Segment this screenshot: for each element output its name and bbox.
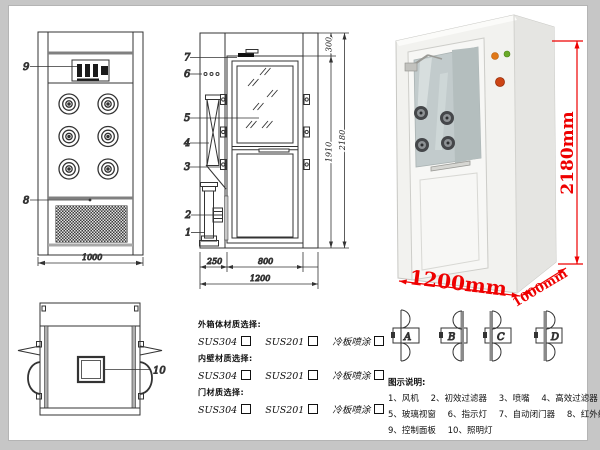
checkbox[interactable]	[308, 370, 318, 380]
legend-block: 图示说明: 1、风机 2、初效过滤器 3、喷嘴 4、高效过滤器 5、玻璃视窗 6…	[388, 376, 593, 436]
material-group-title: 外箱体材质选择:	[198, 319, 378, 330]
legend-item: 1、风机	[388, 394, 419, 404]
photo-dim-height: 2180mm	[558, 111, 578, 194]
checkbox[interactable]	[308, 404, 318, 414]
leader-lines-front	[30, 67, 91, 202]
nozzles-front	[59, 94, 118, 179]
legend-item: 5、玻璃视窗	[388, 410, 436, 420]
checkbox[interactable]	[374, 370, 384, 380]
callout-2: 2	[184, 210, 191, 221]
air-return-grille	[56, 206, 127, 242]
door-option-c: C	[484, 311, 512, 361]
dim-2180: 2180	[338, 130, 347, 151]
material-option-label: SUS304	[198, 371, 237, 382]
callout-3: 3	[184, 162, 190, 173]
material-group-title: 门材质选择:	[198, 387, 378, 398]
checkbox[interactable]	[241, 404, 251, 414]
material-option-label: SUS201	[265, 337, 304, 348]
door-option-d-label: D	[550, 332, 559, 343]
emergency-button	[496, 78, 505, 87]
legend-item: 10、照明灯	[448, 426, 493, 436]
air-shower-spec-sheet: 9 8 1000	[0, 0, 600, 450]
material-option-label: SUS304	[198, 337, 237, 348]
material-options-row: SUS304 SUS201 冷板喷涂	[198, 334, 378, 348]
legend-item: 3、喷嘴	[499, 394, 530, 404]
checkbox[interactable]	[241, 370, 251, 380]
door-hardware-left	[18, 342, 42, 400]
dim-1000: 1000	[82, 253, 102, 262]
door-option-b-label: B	[447, 332, 455, 343]
material-option-label: SUS304	[198, 405, 237, 416]
material-option-label: 冷板喷涂	[332, 337, 370, 348]
top-trim-band	[48, 52, 133, 55]
product-photo: 2180mm 1200mm 1000mm	[396, 15, 583, 310]
door	[227, 56, 303, 243]
glass-hatch-marks	[246, 68, 278, 128]
legend-item: 7、自动闭门器	[499, 410, 555, 420]
legend-item: 6、指示灯	[448, 410, 487, 420]
dim-1910: 1910	[325, 142, 334, 162]
material-option-label: SUS201	[265, 371, 304, 382]
door-glass	[237, 66, 293, 143]
side-nozzle-brackets	[221, 95, 310, 170]
callout-6: 6	[184, 69, 191, 80]
door-swing-options: A B C	[392, 310, 563, 361]
door-option-a: A	[392, 310, 420, 361]
callout-7: 7	[184, 53, 191, 64]
dim-250: 250	[206, 257, 222, 266]
dim-1200: 1200	[250, 274, 270, 283]
dim-800: 800	[258, 257, 273, 266]
door-option-b: B	[440, 311, 468, 361]
callout-4: 4	[183, 138, 190, 149]
legend-item: 2、初效过滤器	[431, 394, 487, 404]
legend-row: 9、控制面板 10、照明灯	[388, 424, 593, 436]
callout-1: 1	[185, 228, 191, 239]
green-indicator-light	[504, 51, 510, 57]
legend-row: 5、玻璃视窗 6、指示灯 7、自动闭门器 8、红外线感应器	[388, 408, 593, 420]
door-handle	[259, 149, 289, 152]
callout-10: 10	[153, 366, 166, 377]
checkbox[interactable]	[241, 336, 251, 346]
material-option-label: 冷板喷涂	[332, 371, 370, 382]
material-selection-block: 外箱体材质选择: SUS304 SUS201 冷板喷涂 内壁材质选择: SUS3…	[198, 314, 378, 416]
door-option-d: D	[535, 311, 563, 361]
door-option-a-label: A	[403, 332, 411, 343]
material-group-title: 内壁材质选择:	[198, 353, 378, 364]
orange-indicator-light	[492, 53, 499, 60]
callout-8: 8	[23, 196, 29, 207]
blower-duct	[200, 183, 229, 247]
callout-5: 5	[184, 113, 190, 124]
legend-item: 4、高效过滤器	[541, 394, 597, 404]
material-options-row: SUS304 SUS201 冷板喷涂	[198, 368, 378, 382]
cabinet-side-face	[514, 15, 556, 293]
side-view: 7 6 5 4 3 2 1 250 800 12	[183, 33, 349, 289]
control-panel	[72, 60, 109, 81]
legend-item: 8、红外线感应器	[567, 410, 600, 420]
indicator-lights	[204, 73, 219, 76]
material-options-row: SUS304 SUS201 冷板喷涂	[198, 402, 378, 416]
checkbox[interactable]	[374, 404, 384, 414]
checkbox[interactable]	[374, 336, 384, 346]
legend-title: 图示说明:	[388, 376, 593, 388]
legend-item: 9、控制面板	[388, 426, 436, 436]
material-option-label: SUS201	[265, 405, 304, 416]
material-option-label: 冷板喷涂	[332, 405, 370, 416]
hepa-filter	[206, 95, 221, 166]
top-view: 10	[18, 303, 166, 415]
legend-row: 1、风机 2、初效过滤器 3、喷嘴 4、高效过滤器	[388, 392, 593, 404]
checkbox[interactable]	[308, 336, 318, 346]
callout-9: 9	[23, 62, 30, 73]
dim-300: 300	[325, 37, 334, 52]
door-option-c-label: C	[497, 332, 505, 343]
ceiling-lamp	[78, 357, 104, 382]
